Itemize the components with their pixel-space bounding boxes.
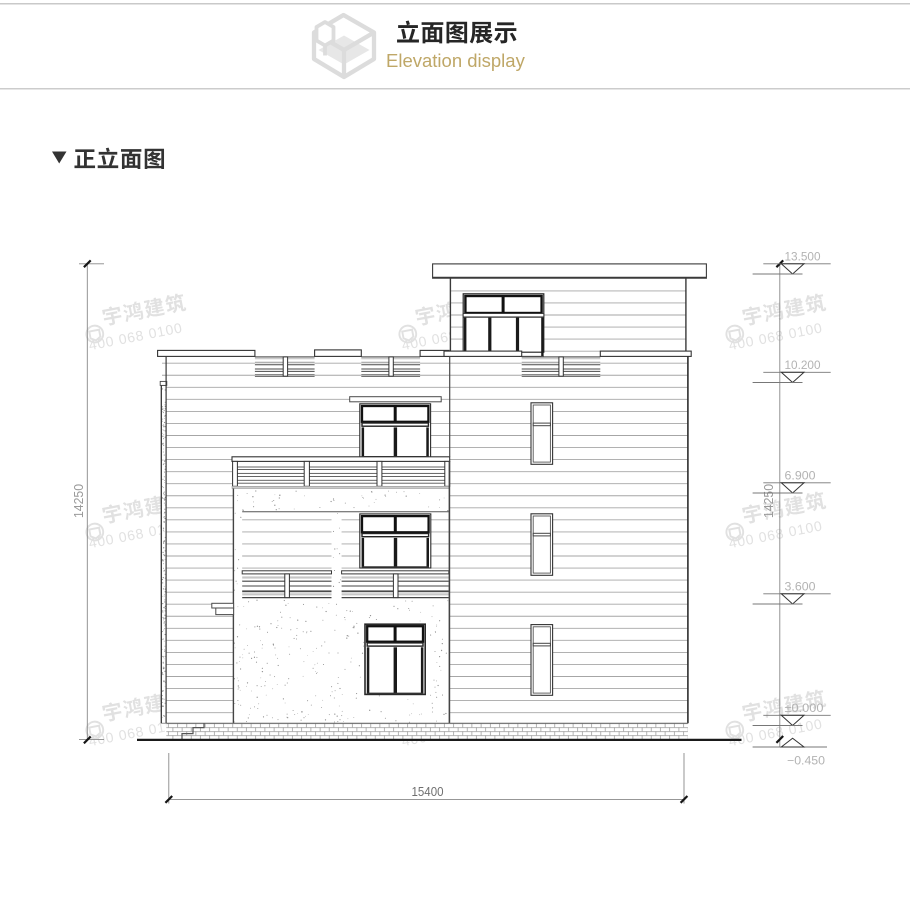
svg-text:13.500: 13.500 (785, 250, 821, 264)
svg-text:14250: 14250 (72, 484, 86, 518)
svg-text:±0.000: ±0.000 (785, 701, 824, 715)
svg-text:15400: 15400 (412, 784, 444, 799)
svg-text:6.900: 6.900 (785, 469, 816, 483)
svg-text:10.200: 10.200 (785, 358, 821, 372)
svg-text:−0.450: −0.450 (787, 754, 825, 768)
svg-text:14250: 14250 (762, 484, 776, 518)
svg-text:3.600: 3.600 (785, 580, 816, 594)
svg-text:Elevation display: Elevation display (386, 50, 526, 71)
